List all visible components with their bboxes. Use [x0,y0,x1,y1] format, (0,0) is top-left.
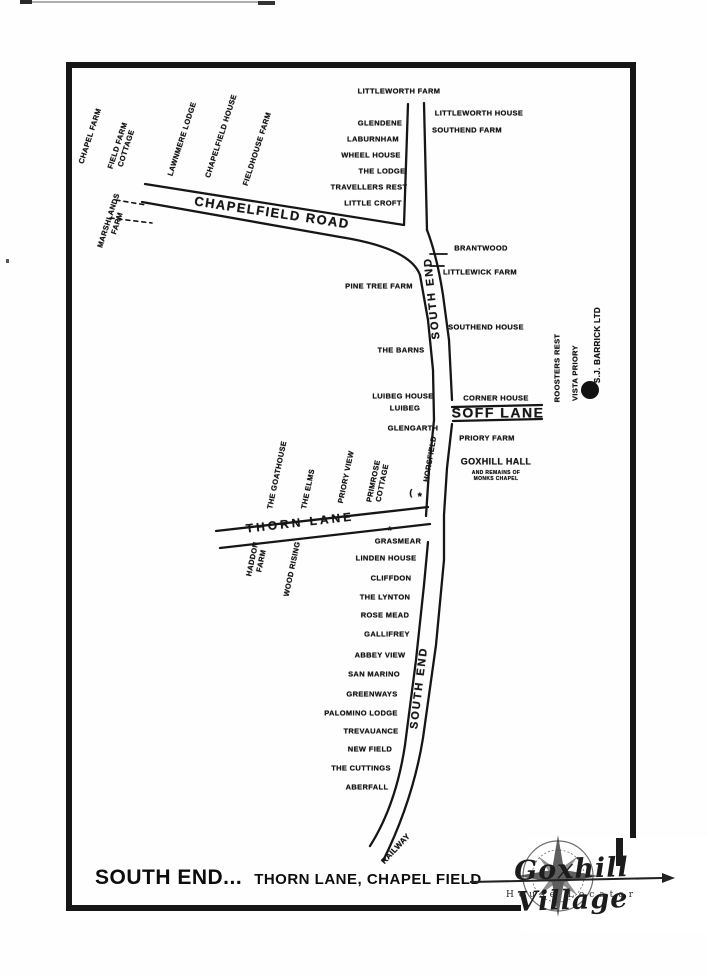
goxhill-village-logo: Goxhill Village House Locator [466,830,678,930]
page-root: LITTLEWORTH FARMLITTLEWORTH HOUSESOUTHEN… [0,0,708,975]
map-title-sub: THORN LANE, CHAPEL FIELD [254,871,482,888]
marker-sj-barrick-dot [581,381,599,399]
markers-layer [0,0,708,975]
logo-subtitle: House Locator [466,890,678,900]
map-title: SOUTH END... THORN LANE, CHAPEL FIELD [95,866,482,890]
logo-script-text: Goxhill Village [465,850,679,919]
map-title-main: SOUTH END... [95,866,242,890]
